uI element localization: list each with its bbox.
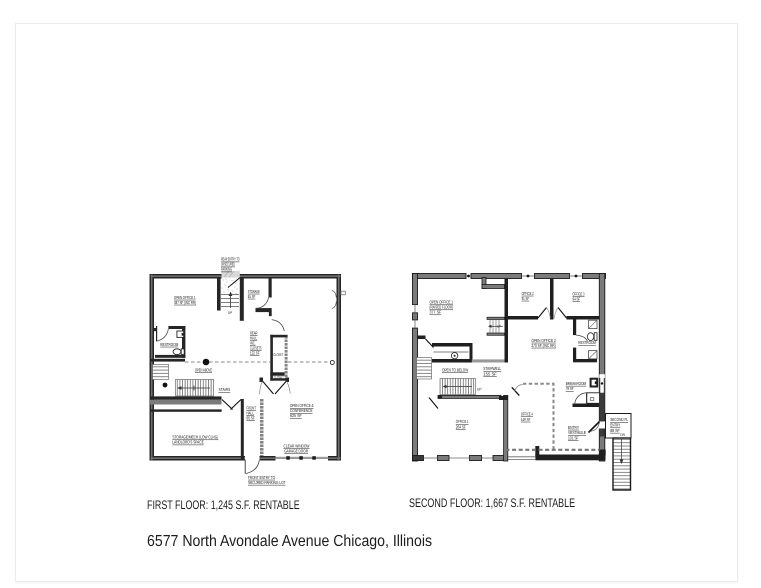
svg-text:GARAGE DOOR: GARAGE DOOR xyxy=(284,449,308,454)
svg-text:CLOSET: CLOSET xyxy=(273,352,283,357)
svg-text:RESTROOM: RESTROOM xyxy=(160,342,178,347)
svg-text:45 SF: 45 SF xyxy=(248,294,256,299)
svg-text:STAIRWELL: STAIRWELL xyxy=(483,366,501,371)
svg-text:94 SF: 94 SF xyxy=(573,296,581,301)
svg-text:UP: UP xyxy=(477,386,482,391)
svg-text:88 SF: 88 SF xyxy=(610,428,620,433)
svg-text:SECOND FL: SECOND FL xyxy=(610,417,628,422)
svg-text:DN: DN xyxy=(620,432,625,437)
svg-text:377 SF: 377 SF xyxy=(430,310,442,315)
svg-text:CLOSET: CLOSET xyxy=(274,375,284,380)
svg-text:122 SF: 122 SF xyxy=(250,351,260,356)
svg-text:SECURED PARKING LOT: SECURED PARKING LOT xyxy=(248,480,286,485)
svg-text:91 SF: 91 SF xyxy=(522,296,530,301)
svg-text:149 SF: 149 SF xyxy=(521,417,531,422)
svg-text:PARKING: PARKING xyxy=(221,267,232,272)
svg-text:RESTROOM: RESTROOM xyxy=(578,340,596,345)
svg-text:OPEN TO BELOW: OPEN TO BELOW xyxy=(442,367,469,372)
svg-text:UP: UP xyxy=(497,324,501,329)
svg-text:VESTIBULE: VESTIBULE xyxy=(568,430,586,435)
svg-text:STAIRS: STAIRS xyxy=(219,387,231,392)
svg-text:OPEN ABOVE: OPEN ABOVE xyxy=(195,367,212,372)
svg-text:387 SF (INC RR): 387 SF (INC RR) xyxy=(174,300,196,305)
svg-text:78 SF: 78 SF xyxy=(566,386,574,391)
svg-text:155 SF: 155 SF xyxy=(483,371,497,376)
svg-text:66 SF: 66 SF xyxy=(246,415,255,420)
svg-text:UP: UP xyxy=(228,310,232,315)
svg-text:ENTRY: ENTRY xyxy=(610,423,620,428)
svg-text:LANDLORD'S SPACE: LANDLORD'S SPACE xyxy=(172,440,203,445)
svg-text:625 SF: 625 SF xyxy=(290,413,302,418)
svg-text:101 SF: 101 SF xyxy=(568,435,579,440)
svg-text:OFFICE 4: OFFICE 4 xyxy=(521,412,533,417)
svg-text:270 SF (INC RR): 270 SF (INC RR) xyxy=(531,343,556,348)
svg-text:264 SF: 264 SF xyxy=(456,424,466,429)
svg-text:ENTRY: ENTRY xyxy=(568,425,579,430)
svg-text:OFFICE 1: OFFICE 1 xyxy=(456,419,469,424)
